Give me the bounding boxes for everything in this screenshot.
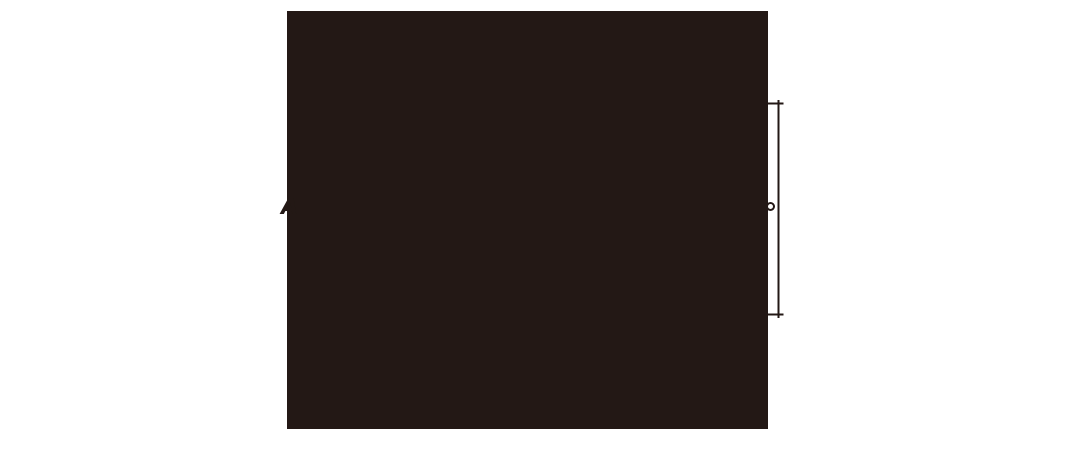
diagram-canvas: A (0, 0, 1068, 462)
dimension-bracket (765, 94, 791, 326)
door-panel (287, 11, 768, 429)
knob-icon (767, 203, 774, 210)
part-label: A (281, 197, 298, 219)
